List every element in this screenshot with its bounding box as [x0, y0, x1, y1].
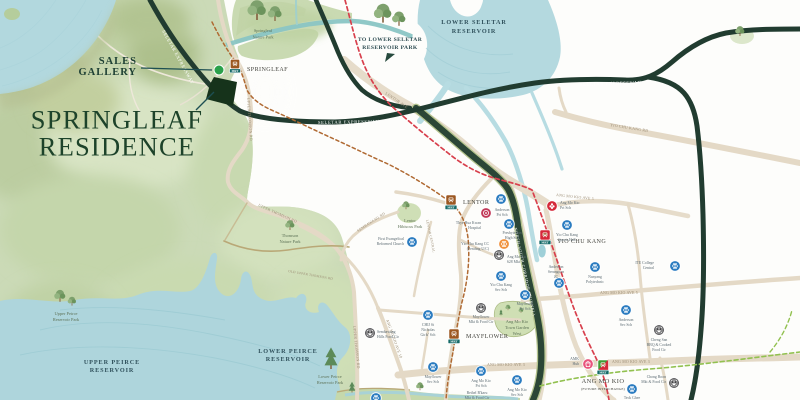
- svg-text:First Evangelical: First Evangelical: [378, 237, 404, 241]
- svg-text:Sec Sch: Sec Sch: [427, 380, 439, 384]
- svg-text:Sec Sch: Sec Sch: [620, 323, 632, 327]
- svg-text:Polytechnic: Polytechnic: [586, 280, 604, 284]
- svg-text:TO LOWER SELETAR: TO LOWER SELETAR: [358, 37, 423, 43]
- svg-text:BBQ & Cooked: BBQ & Cooked: [647, 343, 672, 347]
- svg-text:Ang Mo Kio: Ang Mo Kio: [471, 379, 491, 383]
- svg-text:LOWER SELETAR: LOWER SELETAR: [441, 19, 506, 26]
- svg-text:Yio Chu Kang: Yio Chu Kang: [556, 233, 578, 237]
- svg-text:RESERVOIR PARK: RESERVOIR PARK: [362, 45, 418, 51]
- svg-text:Cheng San: Cheng San: [651, 338, 668, 342]
- svg-text:ANG MO KIO AVE 5: ANG MO KIO AVE 5: [600, 291, 638, 295]
- svg-text:SPRINGLEAF: SPRINGLEAF: [247, 67, 288, 73]
- svg-text:Hospital: Hospital: [468, 226, 481, 230]
- svg-text:Anderson: Anderson: [619, 318, 634, 322]
- svg-text:Pri Sch: Pri Sch: [475, 384, 486, 388]
- svg-text:Sec Sch: Sec Sch: [511, 393, 523, 397]
- svg-text:SALES: SALES: [99, 56, 137, 67]
- svg-text:628 Mkt: 628 Mkt: [507, 260, 521, 264]
- svg-text:Food Ctr: Food Ctr: [652, 348, 666, 352]
- svg-text:MAYFLOWER: MAYFLOWER: [466, 334, 509, 340]
- svg-text:Reservoir Park: Reservoir Park: [317, 380, 344, 385]
- svg-text:RESERVOIR: RESERVOIR: [266, 356, 311, 363]
- svg-text:Lentor: Lentor: [404, 218, 416, 223]
- svg-text:Nanyang: Nanyang: [588, 275, 602, 279]
- svg-text:Reservoir Park: Reservoir Park: [53, 317, 80, 322]
- svg-text:Mayflower: Mayflower: [425, 375, 443, 379]
- svg-text:Nature Park: Nature Park: [279, 239, 301, 244]
- svg-text:RESIDENCE: RESIDENCE: [39, 132, 196, 162]
- svg-text:Serangoon: Serangoon: [548, 270, 564, 274]
- svg-text:Chong Boon: Chong Boon: [647, 375, 666, 379]
- svg-text:SPRINGLEAF: SPRINGLEAF: [31, 105, 204, 135]
- svg-text:Ang Mo Kio: Ang Mo Kio: [506, 319, 529, 324]
- svg-text:Lower Peirce: Lower Peirce: [318, 374, 342, 379]
- svg-text:Mkt & Food Ctr: Mkt & Food Ctr: [641, 380, 667, 384]
- svg-text:Springleaf: Springleaf: [254, 28, 273, 33]
- svg-text:LENTOR: LENTOR: [463, 200, 490, 206]
- svg-text:UPPER PEIRCE: UPPER PEIRCE: [84, 359, 140, 366]
- svg-text:ITE College: ITE College: [635, 261, 654, 265]
- svg-text:(FUTURE INTERCHANGE): (FUTURE INTERCHANGE): [581, 387, 625, 391]
- svg-text:Mayflower: Mayflower: [517, 302, 535, 306]
- svg-text:Mkt & Food Ctr: Mkt & Food Ctr: [465, 396, 491, 400]
- svg-text:Central: Central: [643, 266, 654, 270]
- svg-text:RESERVOIR: RESERVOIR: [90, 367, 135, 374]
- svg-text:ANG MO KIO AVE 3: ANG MO KIO AVE 3: [612, 360, 650, 364]
- svg-text:West: West: [513, 331, 522, 336]
- svg-text:GALLERY: GALLERY: [78, 67, 137, 78]
- svg-text:Ang Mo Kio: Ang Mo Kio: [507, 388, 527, 392]
- svg-text:Girls' Sch: Girls' Sch: [421, 333, 436, 337]
- svg-text:Yio Chu Kang CC: Yio Chu Kang CC: [461, 242, 489, 246]
- svg-text:Hibiscus Park: Hibiscus Park: [398, 224, 423, 229]
- svg-text:LOWER PEIRCE: LOWER PEIRCE: [258, 348, 317, 355]
- svg-text:Ang Mo Kio: Ang Mo Kio: [560, 201, 580, 205]
- svg-text:AMK: AMK: [570, 357, 579, 361]
- svg-text:JC: JC: [554, 275, 558, 279]
- svg-text:Bethel B'karu: Bethel B'karu: [467, 391, 488, 395]
- svg-text:Thye Hua Kwan: Thye Hua Kwan: [456, 221, 481, 225]
- svg-text:Sembawang: Sembawang: [377, 330, 396, 334]
- svg-text:RESERVOIR: RESERVOIR: [452, 28, 497, 35]
- svg-text:CHIJ St: CHIJ St: [422, 323, 435, 327]
- svg-text:Mayflower: Mayflower: [473, 315, 491, 319]
- svg-text:Nicholas: Nicholas: [421, 328, 435, 332]
- svg-text:Upper Peirce: Upper Peirce: [54, 311, 77, 316]
- svg-text:Anderson: Anderson: [495, 208, 510, 212]
- svg-text:Hub: Hub: [572, 362, 579, 366]
- svg-text:(Pending U/C): (Pending U/C): [467, 247, 490, 251]
- svg-text:Anderson: Anderson: [549, 265, 564, 269]
- svg-text:Teck Ghee: Teck Ghee: [624, 396, 641, 400]
- svg-text:Pri Sch: Pri Sch: [496, 213, 507, 217]
- svg-text:Mkt & Food Ctr: Mkt & Food Ctr: [469, 320, 495, 324]
- svg-text:Ang Mo Kio: Ang Mo Kio: [507, 255, 527, 259]
- svg-text:Town Garden: Town Garden: [505, 325, 530, 330]
- svg-text:Sports Hall: Sports Hall: [558, 238, 575, 242]
- svg-text:Hills Food Ctr: Hills Food Ctr: [377, 335, 400, 339]
- svg-text:Reformed Church: Reformed Church: [377, 242, 404, 246]
- svg-text:Thomson: Thomson: [282, 233, 299, 238]
- svg-text:Sec Sch: Sec Sch: [495, 288, 507, 292]
- svg-text:Nature Park: Nature Park: [252, 35, 274, 40]
- svg-text:ANG MO KIO: ANG MO KIO: [582, 378, 625, 385]
- svg-text:ANG MO KIO AVE 3: ANG MO KIO AVE 3: [487, 363, 525, 367]
- svg-text:High Sch: High Sch: [505, 236, 519, 240]
- svg-text:Yio Chu Kang: Yio Chu Kang: [490, 283, 512, 287]
- svg-text:Presbyterian: Presbyterian: [503, 231, 522, 235]
- svg-text:Pri Sch: Pri Sch: [519, 307, 530, 311]
- svg-text:Pri Sch: Pri Sch: [560, 206, 571, 210]
